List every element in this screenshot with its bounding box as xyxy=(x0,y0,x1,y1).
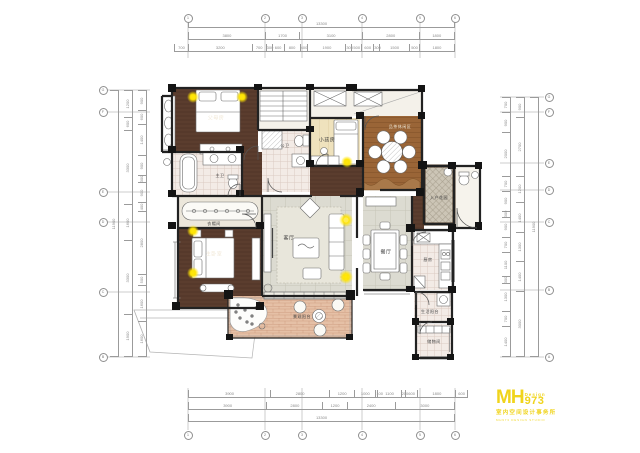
room-label-dining: 餐厅 xyxy=(380,249,391,256)
logo-mh: MH xyxy=(496,390,524,406)
dim-segment: 2000 xyxy=(502,132,511,176)
dim-segment: 800 xyxy=(284,44,300,52)
coffee-table xyxy=(293,238,319,258)
shower-stall xyxy=(262,131,282,149)
room-label-parents: 父母房 xyxy=(208,115,225,122)
logo-subtitle: 室内空间设计事务所 xyxy=(496,408,576,416)
dim-segment: 900 xyxy=(138,155,147,175)
dim-segment: 1400 xyxy=(516,261,525,292)
entry-vase xyxy=(444,168,452,176)
hall-floor-2 xyxy=(310,166,363,196)
dim-segment: 1200 xyxy=(516,176,525,202)
dim-top-total: 13300 xyxy=(188,20,455,28)
dim-bottom-row2: 39002800120024003000 xyxy=(188,402,455,410)
dim-segment: 1100 xyxy=(502,252,511,276)
dim-segment: 500 xyxy=(138,274,147,285)
dim-right-total: 11900 xyxy=(530,97,539,357)
dim-segment: 700 xyxy=(502,237,511,252)
dim-segment: 700 xyxy=(502,311,511,326)
dim-segment: 900 xyxy=(138,90,147,110)
kids-desk xyxy=(311,156,339,165)
dim-segment: 3000 xyxy=(516,291,525,357)
plant-deco xyxy=(164,159,171,166)
dim-segment: 400 xyxy=(138,202,147,211)
balcony-chair xyxy=(294,301,306,313)
dim-segment: 1200 xyxy=(322,402,346,410)
dim-segment: 1000 xyxy=(354,390,375,398)
dim-segment: 1200 xyxy=(124,90,133,117)
dim-segment: 1800 xyxy=(417,390,455,398)
dim-segment: 1500 xyxy=(379,44,409,52)
grid-bubble: G xyxy=(99,86,108,95)
dim-segment: 1400 xyxy=(502,326,511,357)
dim-segment: 1700 xyxy=(265,32,299,40)
room-label-public-bath: 公卫 xyxy=(281,143,290,149)
dim-segment: 13300 xyxy=(188,20,455,28)
floor-plan-sheet: 父母房 小孩房 公卫 主卫 衣帽间 主卧室 客厅 餐厅 品茶休闲区 入户花园 厨… xyxy=(0,0,640,453)
dim-segment: 13300 xyxy=(188,414,455,422)
dim-segment: 1200 xyxy=(329,390,354,398)
dim-segment: 1600 xyxy=(138,285,147,321)
public-toilet xyxy=(295,136,304,147)
room-label-storage: 储物间 xyxy=(427,339,441,345)
room-label-master: 主卧室 xyxy=(206,251,223,258)
dim-segment: 1800 xyxy=(419,44,455,52)
grid-bubble: F xyxy=(99,108,108,117)
grid-bubble: D xyxy=(545,186,554,195)
dining-sideboard xyxy=(366,197,396,206)
tv-cabinet xyxy=(264,214,271,272)
room-label-view-balcony: 景观阳台 xyxy=(293,314,311,320)
dim-segment: 600 xyxy=(361,44,373,52)
kids-chair xyxy=(321,148,328,155)
grid-bubble: F xyxy=(545,108,554,117)
dim-segment: 500 xyxy=(351,44,361,52)
room-label-living: 客厅 xyxy=(283,235,294,242)
dim-segment: 900 xyxy=(502,217,511,237)
grid-bubble: 4 xyxy=(358,431,367,440)
dim-segment: 2800 xyxy=(138,211,147,274)
grid-bubble: 1 xyxy=(184,431,193,440)
dim-top-row2: 38001700310028001800 xyxy=(188,32,455,40)
logo-number: 973 xyxy=(525,397,546,406)
dim-segment: 3800 xyxy=(188,32,265,40)
room-label-cloakroom: 衣帽间 xyxy=(207,221,221,227)
grid-bubble: 2 xyxy=(261,431,270,440)
grid-bubble: 6 xyxy=(451,14,460,23)
dim-segment: 700 xyxy=(502,176,511,191)
grid-bubble: 4 xyxy=(358,14,367,23)
room-label-master-bath: 主卫 xyxy=(216,173,225,179)
dim-segment: 3900 xyxy=(188,390,270,398)
grid-bubble: A xyxy=(545,353,554,362)
dim-segment: 1400 xyxy=(138,124,147,155)
dim-segment: 900 xyxy=(502,191,511,211)
dim-segment: 600 xyxy=(124,117,133,130)
dim-left-outer: 12006003300160033001900 xyxy=(124,90,133,357)
dim-segment: 3000 xyxy=(395,402,455,410)
grid-bubble: 6 xyxy=(451,431,460,440)
grid-bubble: C xyxy=(99,288,108,297)
dim-segment: 3100 xyxy=(299,32,362,40)
hall-floor-1 xyxy=(242,152,262,196)
dim-segment: 1600 xyxy=(124,204,133,240)
dim-segment: 600 xyxy=(272,44,284,52)
dim-segment: 1600 xyxy=(138,321,147,357)
dim-segment: 2800 xyxy=(270,390,329,398)
grid-bubble: E xyxy=(545,159,554,168)
floor-plan-drawing xyxy=(0,0,640,453)
dim-segment: 900 xyxy=(502,112,511,132)
dim-segment: 3900 xyxy=(188,402,266,410)
grid-bubble: B xyxy=(99,353,108,362)
room-label-kitchen: 厨房 xyxy=(424,257,433,263)
dim-segment: 2400 xyxy=(347,402,395,410)
grid-bubble: 5 xyxy=(416,14,425,23)
wc-toilet xyxy=(459,175,469,185)
dim-segment: 2700 xyxy=(516,117,525,176)
dim-segment: 600 xyxy=(455,390,468,398)
dim-segment: 3200 xyxy=(188,44,252,52)
grid-bubble: 1 xyxy=(184,14,193,23)
grid-bubble: C xyxy=(545,218,554,227)
logo-tagline: MH973 DESIGN STUDIO xyxy=(496,418,576,422)
dim-segment: 1900 xyxy=(307,44,345,52)
dim-segment: 11900 xyxy=(530,97,539,357)
balcony-chair xyxy=(314,324,326,336)
ottoman xyxy=(303,268,321,279)
master-tv-cabinet xyxy=(252,238,260,280)
grid-bubble: G xyxy=(545,93,554,102)
dim-segment: 3300 xyxy=(124,130,133,204)
dim-segment: 1300 xyxy=(516,232,525,260)
dim-segment: 400 xyxy=(300,44,308,52)
balcony-chair xyxy=(332,299,344,311)
dim-left-inner: 9006001400900300900400280050016001600 xyxy=(138,90,147,357)
dim-segment: 3300 xyxy=(124,240,133,314)
dim-segment: 11900 xyxy=(110,90,119,357)
dim-segment: 1300 xyxy=(502,283,511,311)
dim-bottom-row1: 390028001200100010011002006001800600 xyxy=(188,390,468,398)
dim-segment: 500 xyxy=(409,44,419,52)
dim-segment: 900 xyxy=(516,97,525,117)
dim-segment: 1800 xyxy=(419,32,455,40)
grid-bubble: B xyxy=(545,286,554,295)
grid-bubble: 3 xyxy=(298,431,307,440)
dim-segment: 2800 xyxy=(362,32,419,40)
dim-top-row3: 7003200700300600800400190030050060030015… xyxy=(174,44,455,52)
dim-right-outer: 900270012001400130014003000 xyxy=(516,97,525,357)
room-label-entry: 入户花园 xyxy=(430,195,448,201)
room-label-tea: 品茶休闲区 xyxy=(389,124,412,130)
wc-basin xyxy=(472,172,479,179)
studio-logo: MH Design 973 室内空间设计事务所 MH973 DESIGN STU… xyxy=(496,390,576,422)
dim-right-inner: 7009002000700900300900700110030013007001… xyxy=(502,97,511,357)
dim-segment: 700 xyxy=(174,44,188,52)
room-label-kids: 小孩房 xyxy=(319,137,336,144)
dim-segment: 600 xyxy=(138,110,147,123)
washer xyxy=(437,293,450,306)
dim-segment: 700 xyxy=(502,97,511,112)
grid-bubble: 2 xyxy=(261,14,270,23)
grid-bubble: 3 xyxy=(298,14,307,23)
grid-bubble: E xyxy=(99,188,108,197)
dim-segment: 300 xyxy=(138,175,147,182)
dim-segment: 2800 xyxy=(266,402,322,410)
dim-segment: 1900 xyxy=(124,314,133,357)
room-label-service-balcony: 生活阳台 xyxy=(421,309,439,315)
dim-segment: 1100 xyxy=(377,390,400,398)
dim-segment: 700 xyxy=(252,44,266,52)
dim-bottom-total: 13300 xyxy=(188,414,455,422)
dim-segment: 1400 xyxy=(516,202,525,233)
grid-bubble: 5 xyxy=(416,431,425,440)
dim-segment: 900 xyxy=(138,182,147,202)
dim-segment: 600 xyxy=(405,390,418,398)
grid-bubble: D xyxy=(99,218,108,227)
dim-left-total: 11900 xyxy=(110,90,119,357)
